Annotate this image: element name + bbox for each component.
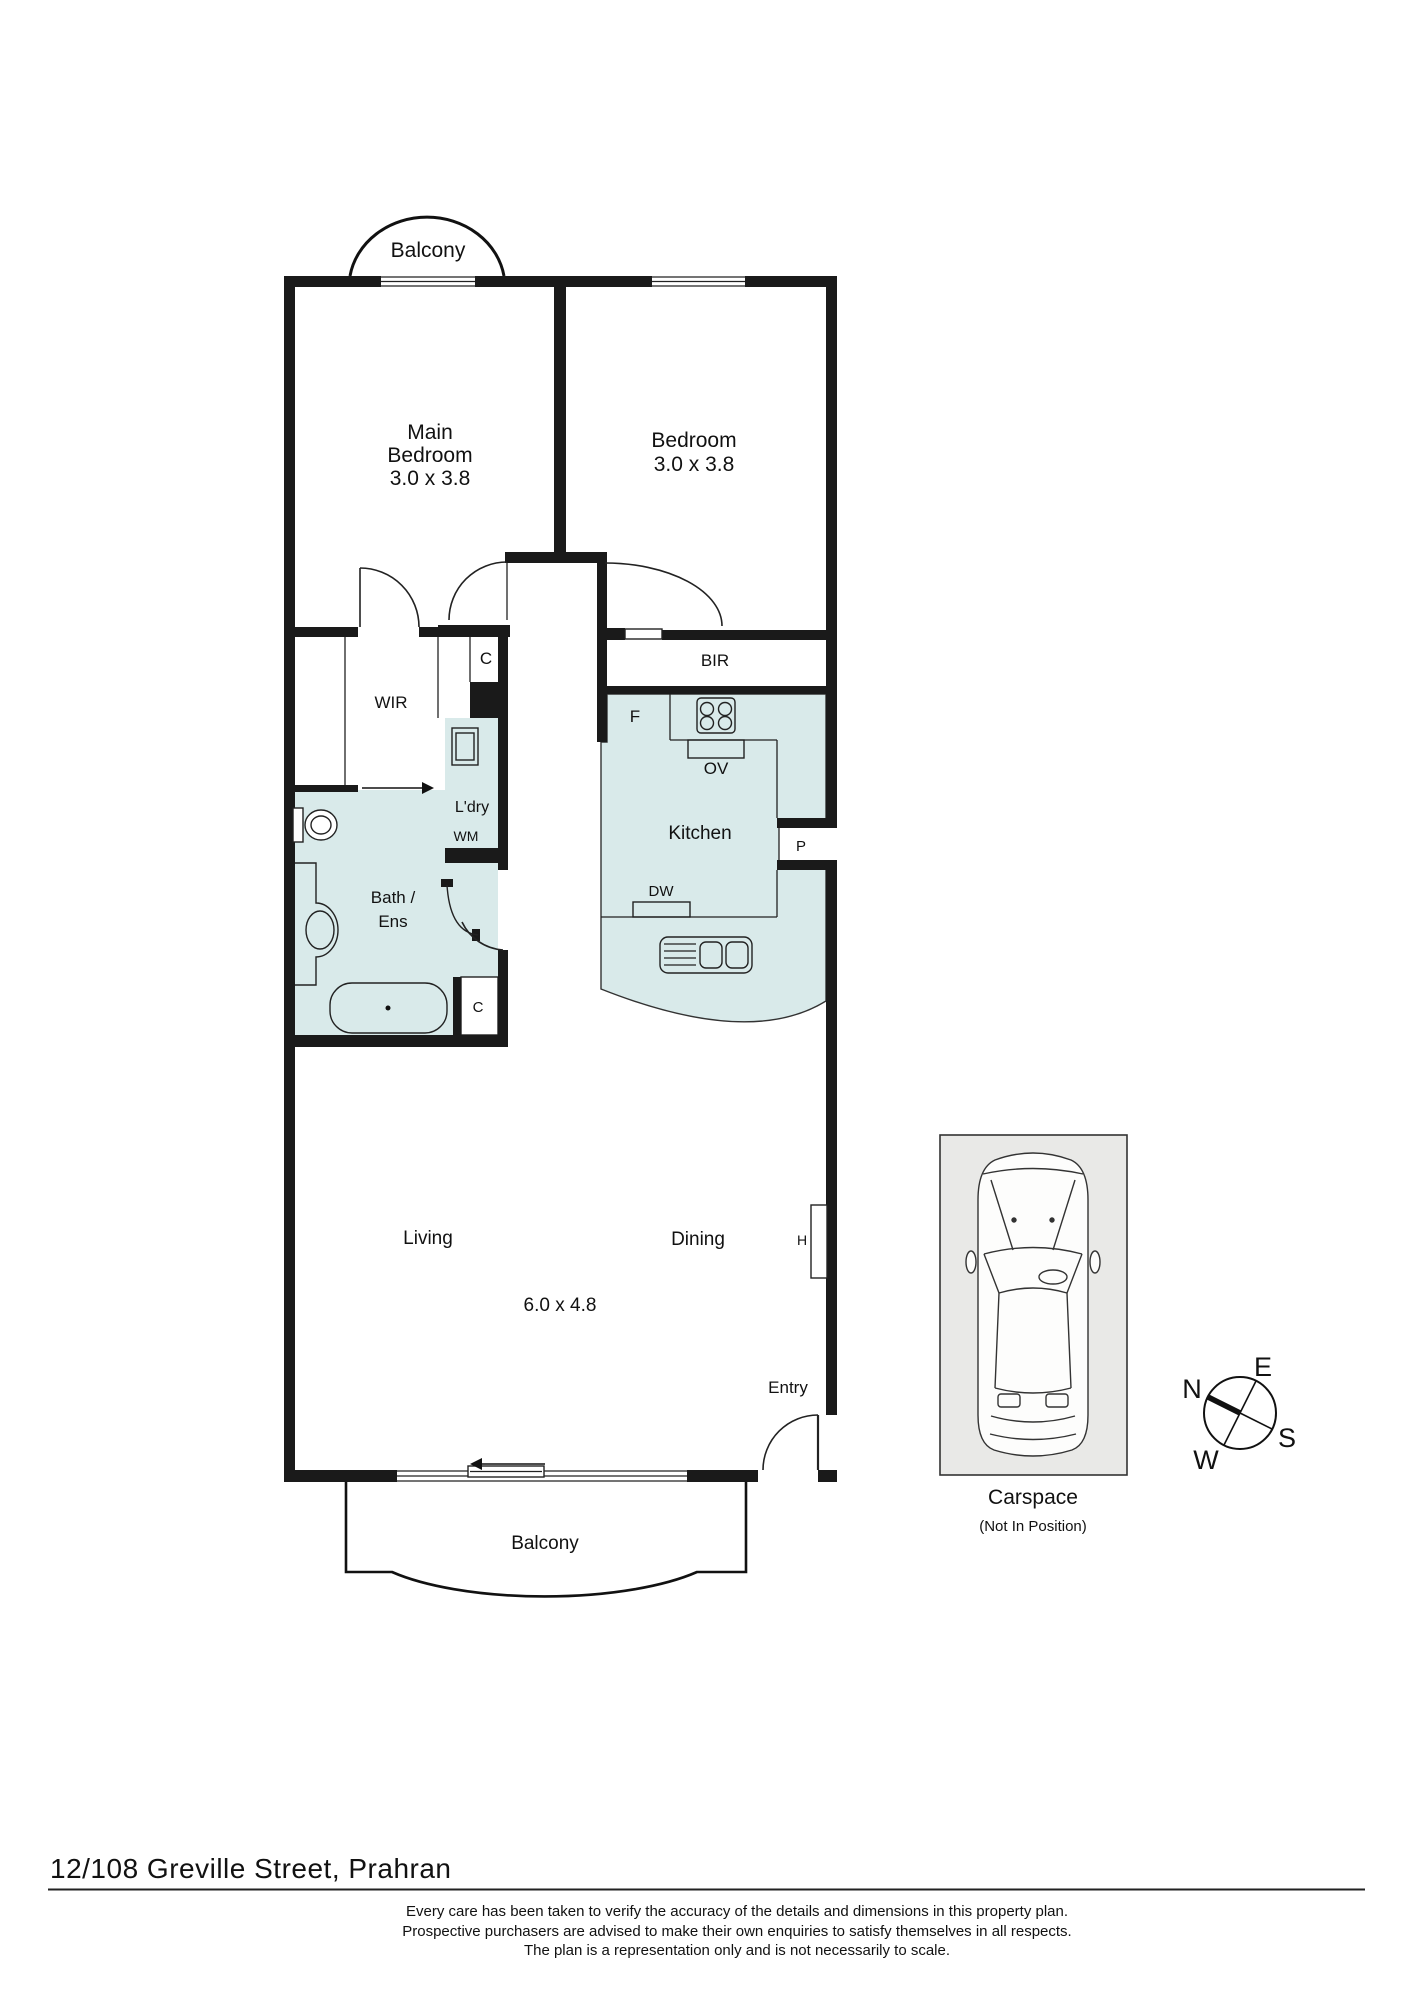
pantry-recess [779,828,837,860]
fridge-label: F [630,707,640,726]
hall-left-door-arc [449,562,507,620]
floorplan-drawing: N E S W Balcony Main Bedroom 3.0 x 3.8 B… [0,0,1413,2000]
bedroom2-door-arc [605,563,722,626]
main-bedroom-label-2: Bedroom [387,444,472,467]
living-label: Living [403,1228,453,1249]
bedroom2-dims: 3.0 x 3.8 [654,453,735,476]
compass-w-label: W [1193,1445,1219,1475]
bir-label: BIR [701,651,729,670]
balcony-top-label: Balcony [391,239,466,262]
wir-label: WIR [374,693,407,712]
main-bedroom-label-1: Main [407,421,453,444]
washing-machine-label: WM [454,828,479,844]
address-text: 12/108 Greville Street, Prahran [50,1853,451,1884]
main-bedroom-dims: 3.0 x 3.8 [390,467,471,490]
hall-closet-label: C [480,649,492,668]
window-top-left [381,274,475,288]
carspace-note: (Not In Position) [979,1518,1087,1535]
entry-door-arc [763,1415,818,1470]
compass-s-label: S [1278,1423,1296,1453]
hot-water-box [811,1205,827,1278]
floorplan-page: N E S W Balcony Main Bedroom 3.0 x 3.8 B… [0,0,1413,2000]
balcony-bottom-label: Balcony [511,1533,579,1554]
bedroom2-label: Bedroom [651,429,736,452]
window-balcony-sliding-door [397,1466,687,1484]
carspace-label: Carspace [988,1486,1078,1509]
compass-n-label: N [1182,1374,1202,1404]
laundry-label: L'dry [455,799,489,816]
bath-closet-label: C [473,999,484,1016]
disclaimer-line-3: The plan is a representation only and is… [524,1942,950,1959]
main-bedroom-door-arc [360,568,419,627]
entry-label: Entry [768,1378,808,1397]
bath-label-2: Ens [378,912,407,931]
compass-e-label: E [1254,1352,1272,1382]
bath-label-1: Bath / [371,888,416,907]
disclaimer-line-2: Prospective purchasers are advised to ma… [402,1923,1071,1940]
oven-label: OV [704,759,729,778]
window-top-right [652,274,745,288]
living-dims: 6.0 x 4.8 [524,1295,597,1316]
pantry-label: P [796,838,806,855]
compass-icon: N E S W [1182,1352,1296,1475]
wet-areas [295,694,826,1035]
bir-opening [625,629,662,639]
kitchen-label: Kitchen [668,823,731,844]
disclaimer-line-1: Every care has been taken to verify the … [406,1903,1068,1920]
dining-label: Dining [671,1229,725,1250]
toilet-icon [293,808,303,842]
car-icon [966,1153,1100,1456]
hot-water-label: H [797,1232,807,1248]
dishwasher-label: DW [649,883,675,900]
